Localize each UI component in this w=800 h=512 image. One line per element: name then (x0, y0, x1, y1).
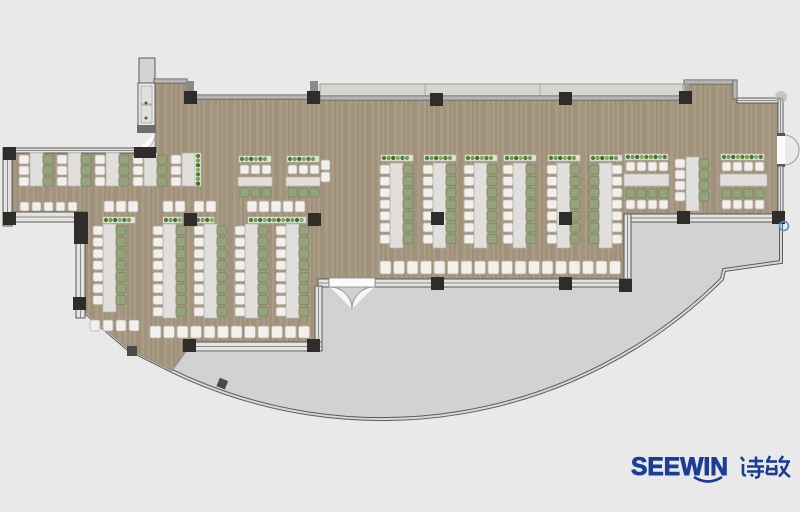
svg-text:SEEWIN: SEEWIN (631, 453, 728, 481)
